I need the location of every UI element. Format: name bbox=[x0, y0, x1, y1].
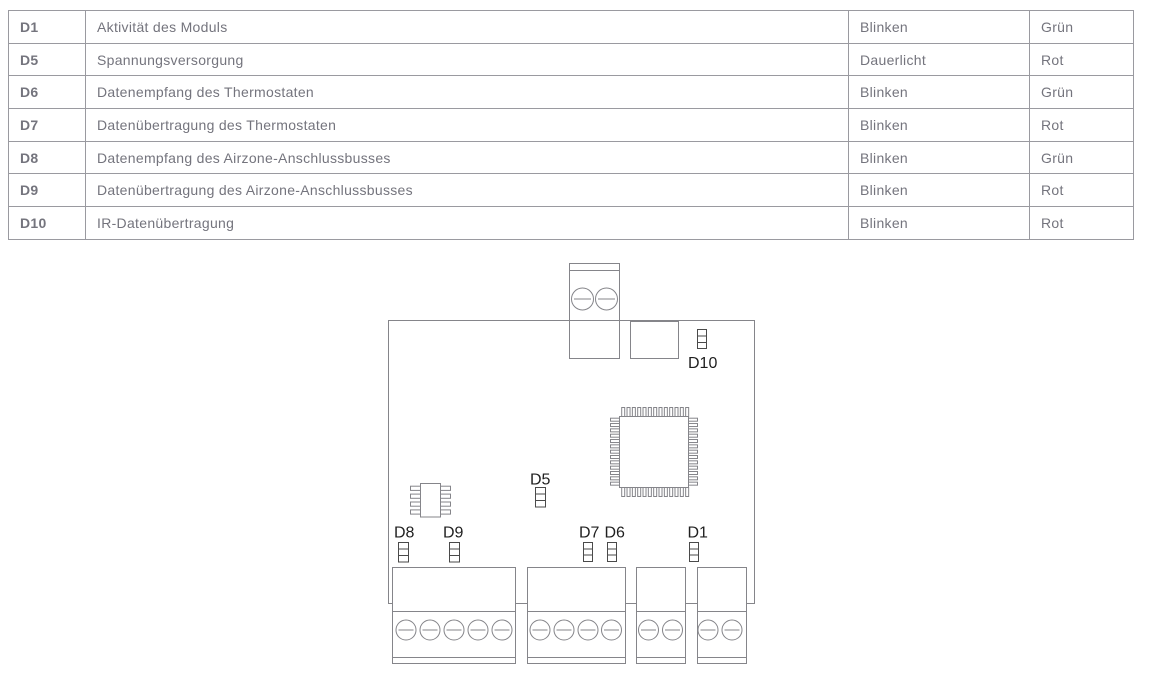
led-d7 bbox=[584, 543, 593, 562]
terminal-block-5pin bbox=[393, 568, 516, 664]
terminal-block-2pin-right bbox=[698, 568, 747, 664]
terminal-screw bbox=[420, 620, 440, 640]
led-d5 bbox=[536, 488, 546, 508]
terminal-screw bbox=[444, 620, 464, 640]
terminal-screw bbox=[722, 620, 742, 640]
terminal-block-4pin bbox=[528, 568, 626, 664]
terminal-screw bbox=[530, 620, 550, 640]
terminal-screw bbox=[578, 620, 598, 640]
connector-socket bbox=[631, 322, 679, 359]
led-label-d6: D6 bbox=[605, 525, 626, 542]
led-d10 bbox=[698, 330, 707, 349]
soic-chip bbox=[411, 484, 451, 518]
top-terminal-block bbox=[570, 264, 620, 359]
led-d8 bbox=[399, 543, 409, 563]
mcu-chip bbox=[611, 408, 698, 497]
pcb-diagram: D10 D5 D8 D9 bbox=[0, 0, 1175, 695]
terminal-screw bbox=[698, 620, 718, 640]
terminal-screw bbox=[596, 288, 618, 310]
led-label-d1: D1 bbox=[688, 525, 709, 542]
terminal-screw bbox=[572, 288, 594, 310]
led-d9 bbox=[450, 543, 460, 563]
terminal-screw bbox=[639, 620, 659, 640]
terminal-screw bbox=[663, 620, 683, 640]
led-d6 bbox=[608, 543, 617, 562]
terminal-screw bbox=[602, 620, 622, 640]
led-label-d10: D10 bbox=[688, 355, 717, 372]
led-d1 bbox=[690, 543, 699, 562]
led-label-d5: D5 bbox=[530, 472, 551, 489]
led-label-d8: D8 bbox=[394, 525, 415, 542]
terminal-block-2pin-left bbox=[637, 568, 686, 664]
terminal-screw bbox=[396, 620, 416, 640]
led-label-d9: D9 bbox=[443, 525, 464, 542]
terminal-screw bbox=[492, 620, 512, 640]
terminal-screw bbox=[468, 620, 488, 640]
terminal-screw bbox=[554, 620, 574, 640]
led-label-d7: D7 bbox=[579, 525, 600, 542]
